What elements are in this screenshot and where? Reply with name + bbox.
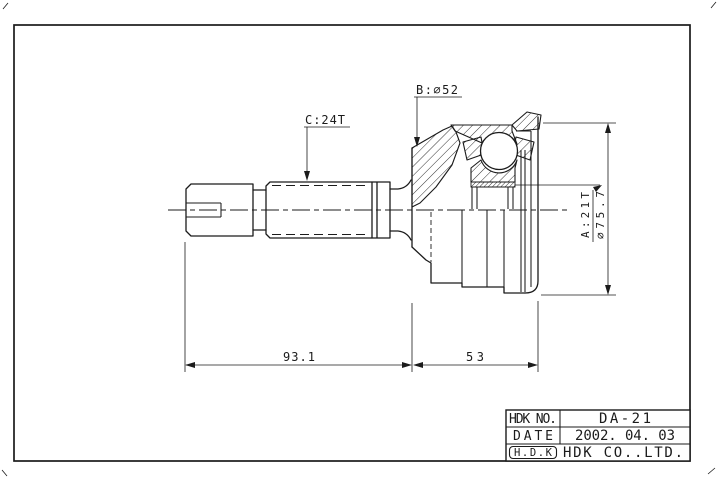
housing-bottom-contour	[412, 247, 525, 293]
dimensions: C:24T B:⌀52 A:21T ⌀75.7	[185, 83, 616, 372]
hdk-no-label: HDK NO.	[509, 412, 557, 427]
spline-c-label: C:24T	[305, 113, 345, 127]
ball-bearing	[481, 133, 518, 170]
corner-marks	[2, 2, 716, 476]
title-row-date: DATE 2002. 04. 03	[513, 428, 675, 444]
cv-joint-engineering-drawing: C:24T B:⌀52 A:21T ⌀75.7	[0, 0, 720, 479]
leader-spline-c: C:24T	[304, 113, 350, 181]
diameter-b-label: B:⌀52	[416, 83, 458, 97]
dim-left-label: 93.1	[283, 350, 315, 364]
title-row-company: H.D.K HDK CO..LTD.	[510, 445, 684, 461]
drawing-sheet: C:24T B:⌀52 A:21T ⌀75.7	[0, 0, 720, 479]
race-bore-lines	[471, 187, 515, 209]
dim-right-label: 53	[466, 350, 484, 364]
date-value: 2002. 04. 03	[575, 428, 675, 444]
race-band	[471, 182, 515, 187]
cv-joint-view	[168, 112, 570, 293]
housing-section	[412, 112, 541, 209]
dimension-lengths: 93.1 53	[185, 242, 538, 372]
company-name: HDK CO..LTD.	[563, 445, 683, 461]
housing-rim-lip	[512, 112, 541, 131]
spline-a-label: A:21T	[579, 192, 592, 238]
hdk-logo: H.D.K	[514, 447, 553, 459]
outer-diameter-label: ⌀75.7	[594, 191, 607, 239]
hdk-no-value: DA-21	[599, 411, 651, 427]
title-block: HDK NO. DA-21 DATE 2002. 04. 03 H.D.K HD…	[506, 410, 690, 461]
drawing-frame	[14, 25, 690, 461]
